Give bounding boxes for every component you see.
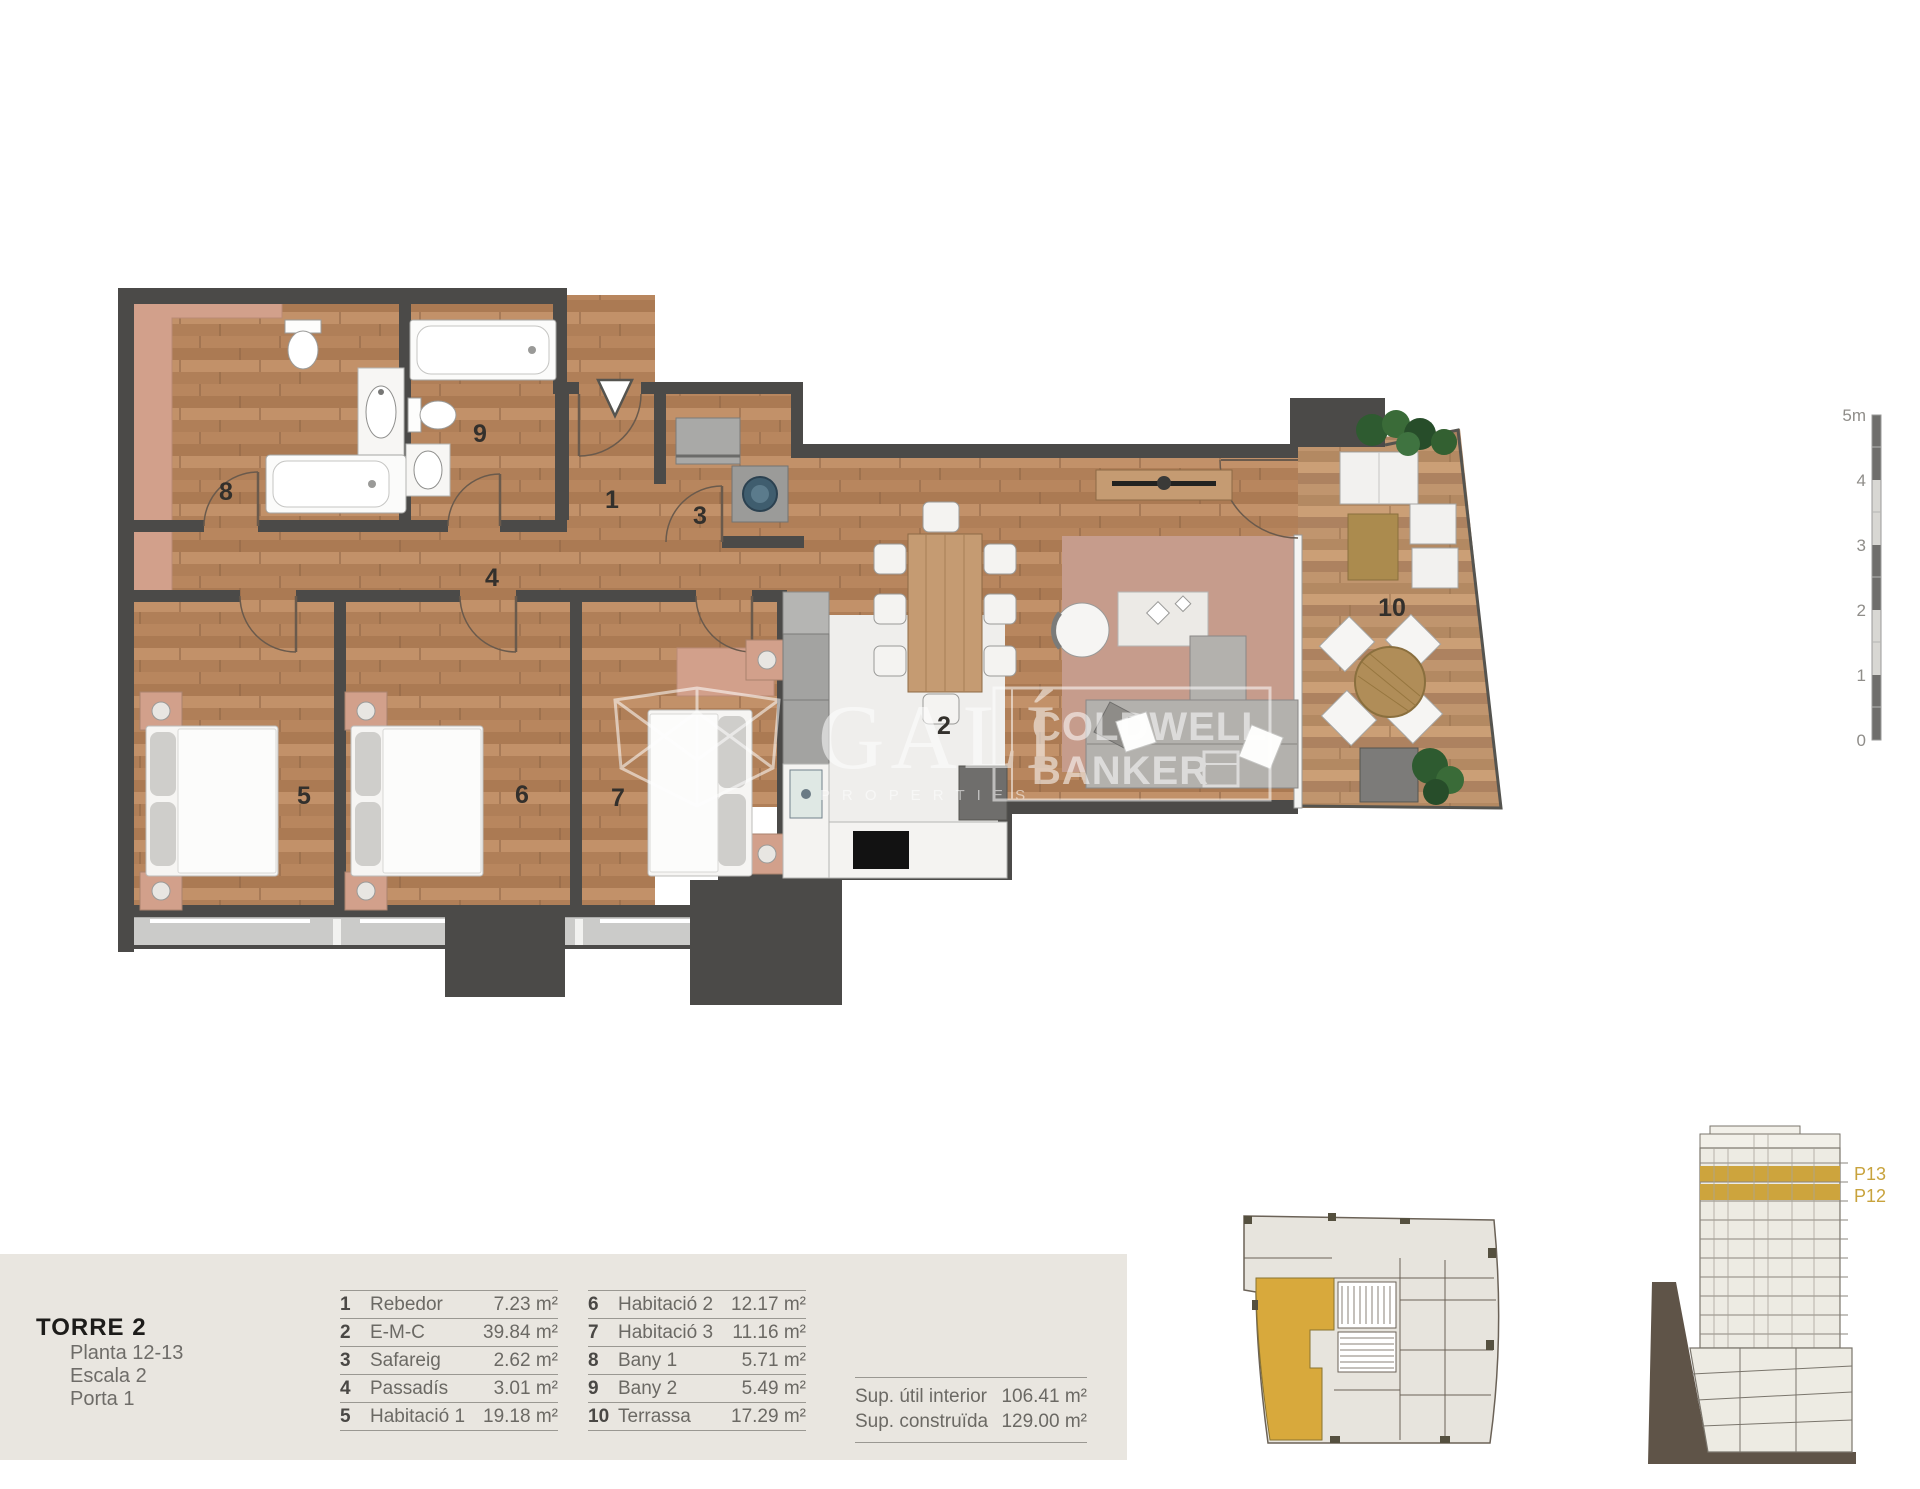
- title-block: TORRE 2 Planta 12-13 Escala 2 Porta 1: [36, 1314, 183, 1411]
- legend-column-right: 6Habitació 212.17 m² 7Habitació 311.16 m…: [588, 1290, 806, 1431]
- svg-text:COLDWELL: COLDWELL: [1032, 705, 1267, 749]
- stair-line: Escala 2: [70, 1365, 183, 1388]
- room-label-5: 5: [297, 782, 311, 810]
- scale-label-1: 1: [1857, 666, 1866, 685]
- legend-row: 8Bany 15.71 m²: [588, 1347, 806, 1375]
- tower-title: TORRE 2: [36, 1314, 183, 1342]
- room-label-10: 10: [1378, 594, 1406, 622]
- summary-row-useful: Sup. útil interior 106.41 m²: [855, 1384, 1087, 1409]
- scale-label-3: 3: [1857, 536, 1866, 555]
- info-band: TORRE 2 Planta 12-13 Escala 2 Porta 1 1R…: [0, 1254, 1127, 1460]
- legend-row: 9Bany 25.49 m²: [588, 1375, 806, 1403]
- key-plan: [1244, 1213, 1499, 1443]
- scale-label-2: 2: [1857, 601, 1866, 620]
- legend-row: 3Safareig2.62 m²: [340, 1347, 558, 1375]
- scale-bar: 5m 4 3 2 1 0: [1842, 406, 1881, 750]
- legend-row: 2E-M-C39.84 m²: [340, 1319, 558, 1347]
- legend-column-left: 1Rebedor7.23 m² 2E-M-C39.84 m² 3Safareig…: [340, 1290, 558, 1431]
- building-section: P13 P12: [1648, 1126, 1886, 1464]
- door-line: Porta 1: [70, 1388, 183, 1411]
- room-label-9: 9: [473, 420, 487, 448]
- floor-line: Planta 12-13: [70, 1342, 183, 1365]
- legend-row: 1Rebedor7.23 m²: [340, 1290, 558, 1319]
- legend-row: 4Passadís3.01 m²: [340, 1375, 558, 1403]
- svg-text:BANKER: BANKER: [1032, 749, 1209, 793]
- surface-summary: Sup. útil interior 106.41 m² Sup. constr…: [855, 1377, 1087, 1443]
- scale-label-4: 4: [1857, 471, 1866, 490]
- room-label-7: 7: [611, 784, 625, 812]
- room-label-1: 1: [605, 486, 619, 514]
- scale-label-5m: 5m: [1842, 406, 1866, 425]
- room-label-6: 6: [515, 781, 529, 809]
- section-floor-label-p12: P12: [1854, 1186, 1886, 1206]
- section-highlight-floor-13: [1700, 1166, 1840, 1182]
- legend-row: 7Habitació 311.16 m²: [588, 1319, 806, 1347]
- room-label-4: 4: [485, 564, 499, 592]
- room-label-3: 3: [693, 502, 707, 530]
- summary-row-built: Sup. construïda 129.00 m²: [855, 1409, 1087, 1434]
- section-floor-label-p13: P13: [1854, 1164, 1886, 1184]
- scale-label-0: 0: [1857, 731, 1866, 750]
- room-label-2: 2: [937, 712, 951, 740]
- floorplan-page: GALÍ P R O P E R T I E S COLDWELL BANKER…: [0, 0, 1920, 1489]
- legend-row: 10Terrassa17.29 m²: [588, 1403, 806, 1431]
- legend-row: 6Habitació 212.17 m²: [588, 1290, 806, 1319]
- bedroom-balcony: [130, 917, 700, 947]
- legend-row: 5Habitació 119.18 m²: [340, 1403, 558, 1431]
- room-label-8: 8: [219, 478, 233, 506]
- section-highlight-floor-12: [1700, 1184, 1840, 1200]
